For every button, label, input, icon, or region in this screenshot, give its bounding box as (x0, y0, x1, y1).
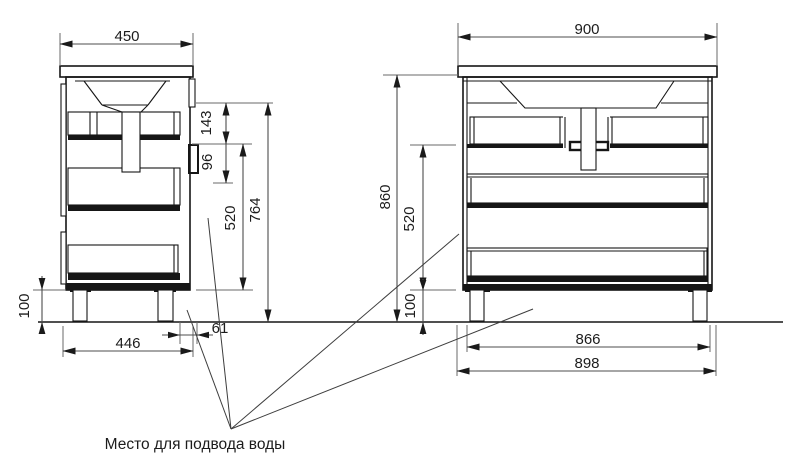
front-edge-rail-lower (61, 232, 66, 284)
countertop-side (60, 66, 193, 77)
drawer-2-side (68, 168, 180, 211)
drawer-3-front (467, 248, 708, 282)
dim-label-100-left: 100 (16, 293, 33, 318)
front-view (458, 66, 717, 321)
dim-label-866: 866 (575, 331, 600, 348)
dim-label-143: 143 (198, 110, 215, 135)
drawing-canvas: 450 143 96 520 764 100 446 61 (0, 0, 800, 467)
water-supply-leaders (187, 218, 533, 429)
basin-funnel-side (102, 105, 148, 112)
dim-label-764: 764 (247, 197, 264, 222)
dim-label-100-right: 100 (402, 293, 419, 318)
left-leg-side (73, 290, 87, 321)
dim-label-860: 860 (377, 184, 394, 209)
drawer-3-side (68, 245, 180, 280)
dim-label-450: 450 (114, 28, 139, 45)
right-leg-front (693, 290, 707, 321)
right-leg-side (158, 290, 173, 321)
dim-label-96: 96 (199, 154, 216, 171)
countertop-front (458, 66, 717, 77)
dim-label-520-left: 520 (222, 205, 239, 230)
drawer-1-front (467, 108, 708, 170)
basin-side (75, 81, 170, 105)
drain-pipe-side (122, 112, 140, 172)
back-edge-rail (189, 79, 195, 107)
drain-pipe-front (581, 108, 596, 170)
drawer-2-front (467, 174, 708, 208)
cabinet-body-side (66, 77, 190, 290)
dim-label-900: 900 (574, 21, 599, 38)
bottom-panel-front (463, 284, 712, 290)
dim-label-520-right: 520 (401, 206, 418, 231)
dim-label-446: 446 (115, 335, 140, 352)
vanity-dimension-drawing: 450 143 96 520 764 100 446 61 (0, 0, 800, 467)
front-edge-rail-upper (61, 84, 66, 216)
dim-label-898: 898 (574, 355, 599, 372)
basin-front (463, 81, 712, 108)
water-supply-note: Место для подвода воды (105, 436, 286, 453)
left-leg-front (470, 290, 484, 321)
left-side-view (60, 66, 198, 321)
